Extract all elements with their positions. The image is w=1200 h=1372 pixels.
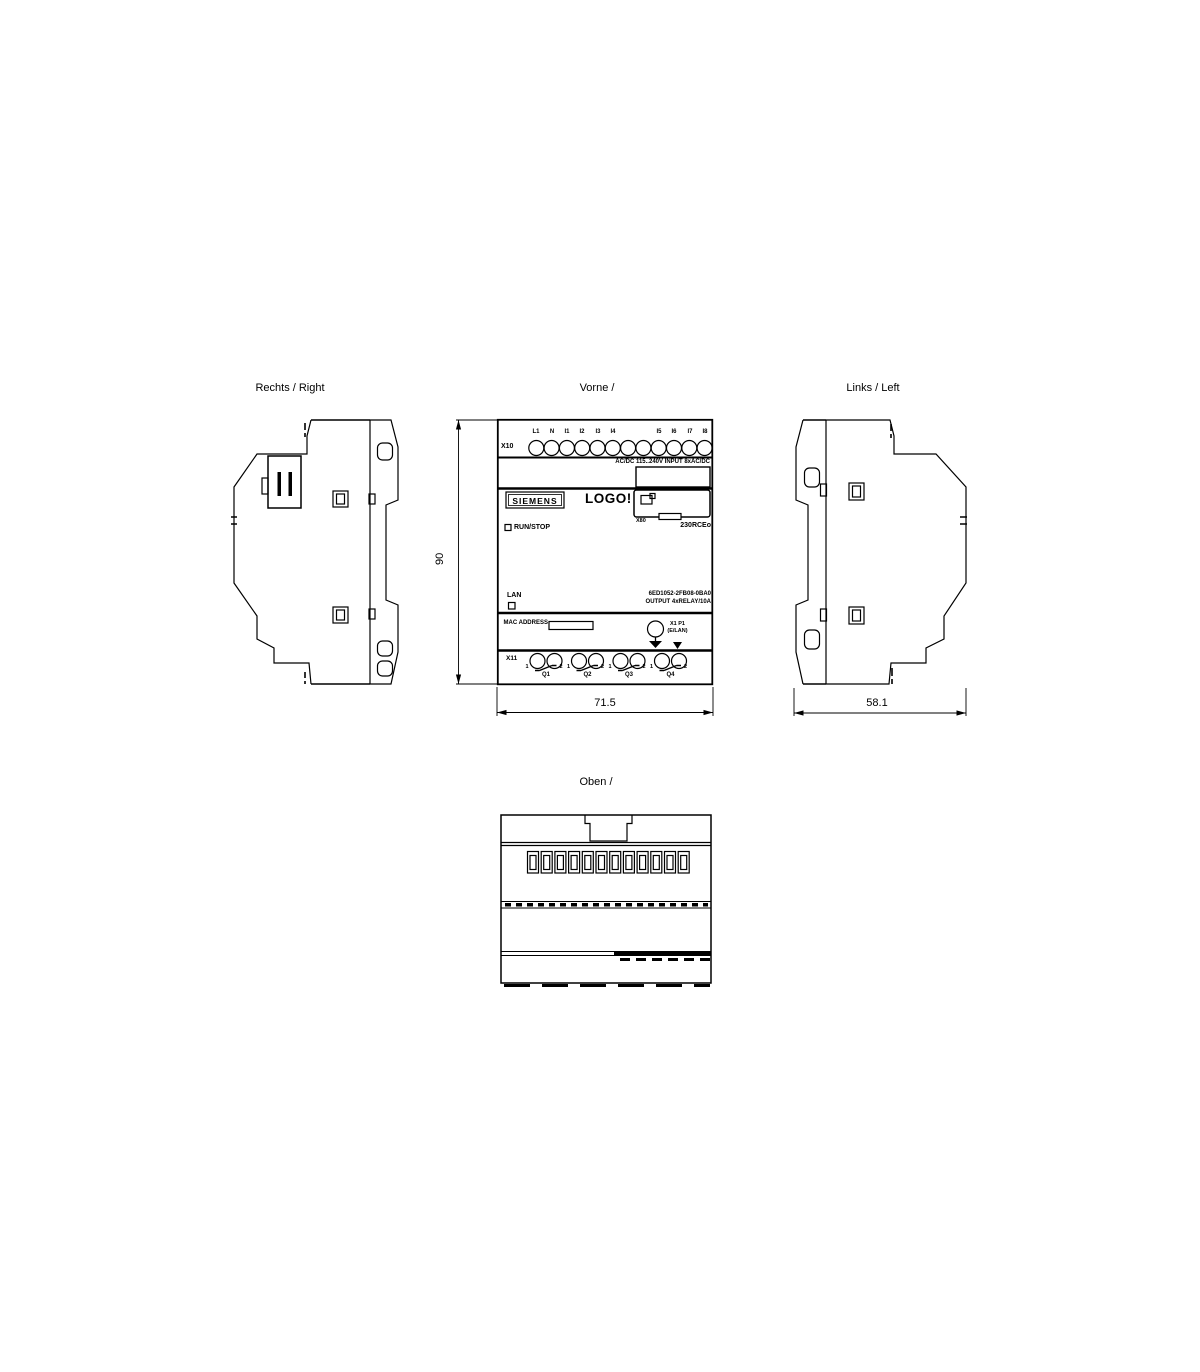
rating-label-window [636, 467, 710, 487]
terminal-label: I1 [559, 429, 575, 435]
pair-number: 1 [526, 665, 529, 671]
pair-number: 2 [643, 665, 646, 671]
output-label: Q1 [534, 672, 558, 678]
port-label: X1 P1 [662, 622, 693, 628]
rail-hole [378, 641, 393, 656]
din-release-tab [585, 815, 632, 841]
input-rating-text: AC/DC 115..240V INPUT 8xAC/DC [555, 459, 710, 465]
product-name: LOGO! [585, 492, 632, 506]
right-side-view [231, 420, 398, 684]
display-cover [634, 490, 710, 520]
terminal-label: L1 [528, 429, 544, 435]
terminal-label: I8 [697, 429, 713, 435]
view-title-left: Links / Left [828, 383, 918, 394]
rail-hole [805, 630, 820, 649]
port-sub-label: (E/LAN) [659, 629, 696, 635]
output-label: Q3 [617, 672, 641, 678]
pair-number: 1 [609, 665, 612, 671]
dimension-depth: 58.1 [852, 698, 902, 709]
terminal-label: I3 [590, 429, 606, 435]
pair-number: 1 [650, 665, 653, 671]
pair-number: 2 [601, 665, 604, 671]
functional-earth-icon [649, 641, 662, 648]
connector-x80-label: X80 [636, 519, 646, 525]
input-terminal-circles [529, 441, 712, 456]
dimension-height: 90 [435, 553, 446, 565]
mac-address-box [549, 622, 593, 630]
pair-number: 2 [684, 665, 687, 671]
terminal-screw-slots [528, 852, 690, 874]
terminal-label: I2 [574, 429, 590, 435]
lan-led [509, 603, 516, 610]
terminal-label: I7 [682, 429, 698, 435]
terminal-label: I4 [605, 429, 621, 435]
siemens-logo: SIEMENS [506, 497, 564, 506]
left-side-view [796, 420, 967, 684]
terminal-label: N [544, 429, 560, 435]
dimensional-drawing-canvas [0, 0, 1200, 1372]
terminal-label: I6 [666, 429, 682, 435]
connector-x10-label: X10 [501, 443, 513, 450]
pair-number: 2 [560, 665, 563, 671]
mac-address-label: MAC ADDRESS [504, 620, 548, 626]
article-number: 6ED1052-2FB08-0BA0 [601, 591, 711, 597]
port-marker-triangle [673, 642, 682, 649]
run-stop-led [505, 525, 511, 531]
dimension-annotations [456, 420, 966, 716]
view-title-right: Rechts / Right [245, 383, 335, 394]
expansion-connector [262, 456, 301, 508]
terminal-label: I5 [651, 429, 667, 435]
lan-label: LAN [507, 592, 521, 599]
dimension-drawing: Rechts / Right Vorne / Links / Left Oben… [0, 0, 1200, 1372]
pair-number: 1 [567, 665, 570, 671]
output-label: Q2 [576, 672, 600, 678]
model-label: 230RCEo [651, 522, 711, 529]
din-clip [333, 491, 348, 623]
rail-hole [378, 443, 393, 460]
rail-hole [378, 661, 393, 676]
din-clip [849, 483, 864, 624]
dimension-width: 71.5 [580, 698, 630, 709]
view-title-top: Oben / [551, 777, 641, 788]
output-label: Q4 [659, 672, 683, 678]
rail-hole [805, 468, 820, 487]
run-stop-label: RUN/STOP [514, 524, 550, 531]
view-title-front: Vorne / [552, 383, 642, 394]
connector-x11-label: X11 [506, 656, 517, 663]
output-rating-text: OUTPUT 4xRELAY/10A [601, 599, 711, 605]
top-view [501, 815, 711, 986]
